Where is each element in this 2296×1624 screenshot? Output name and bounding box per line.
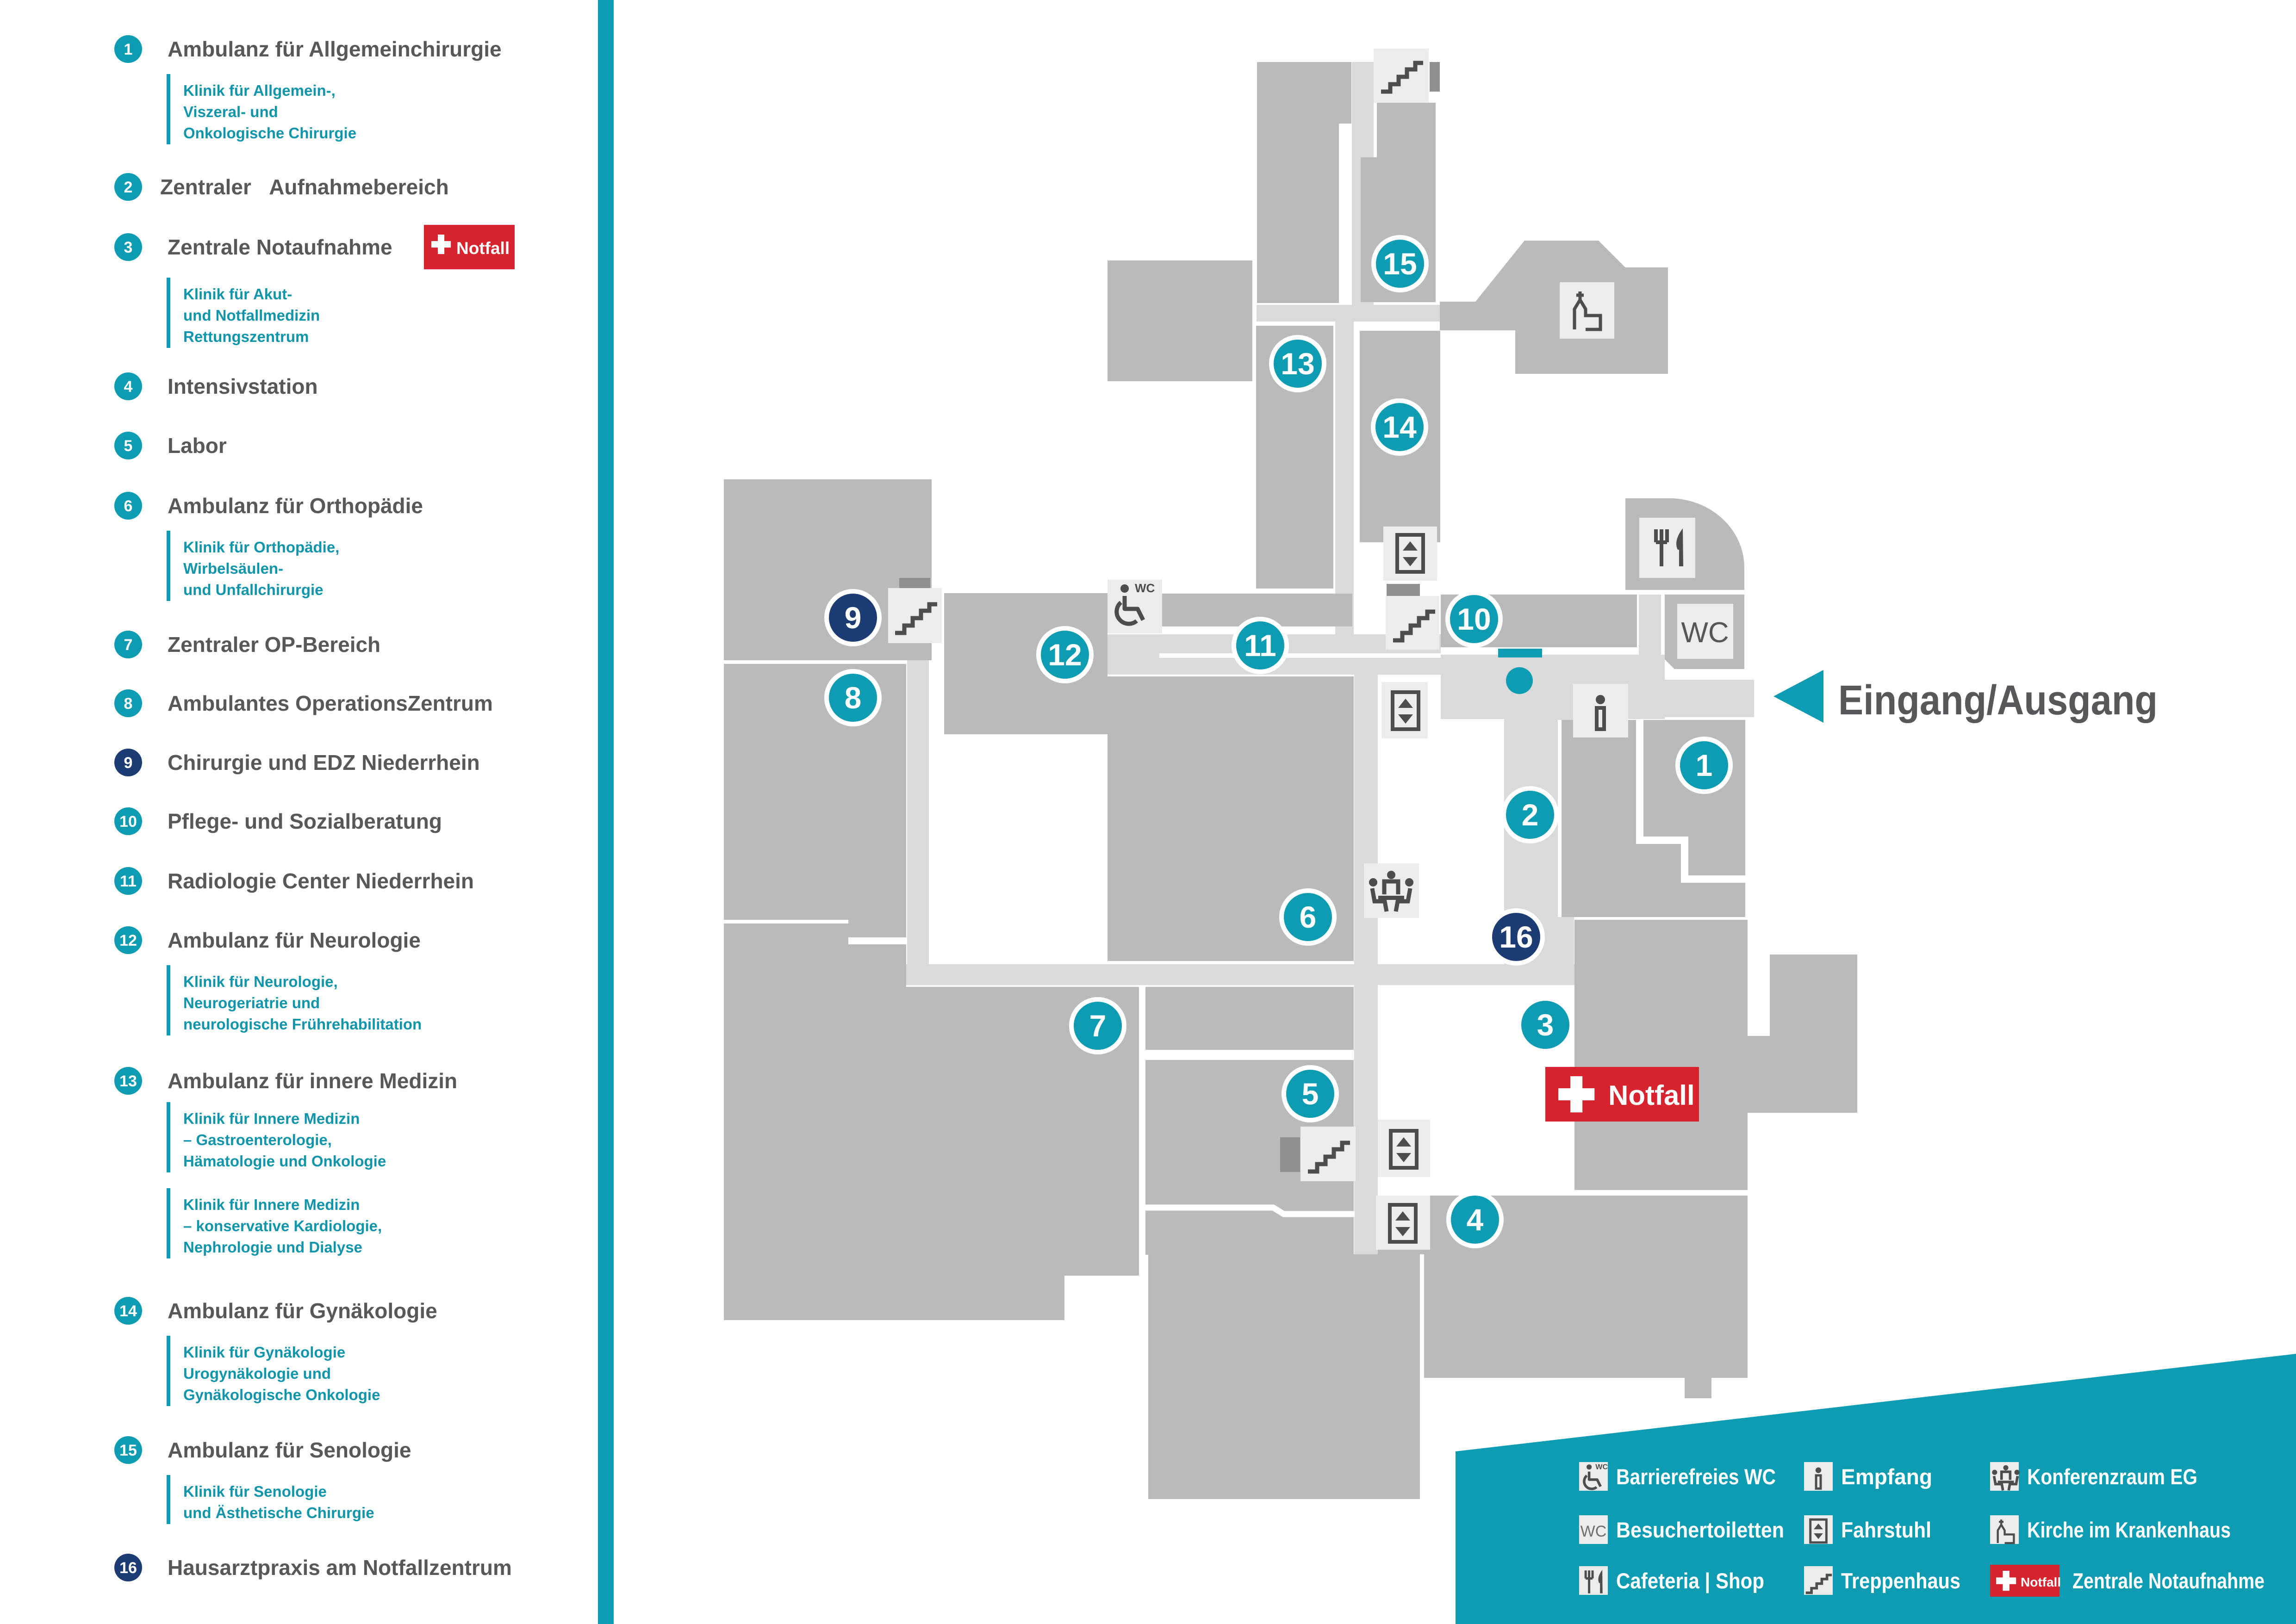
svg-text:und Ästhetische Chirurgie: und Ästhetische Chirurgie <box>183 1504 374 1521</box>
svg-text:Besuchertoiletten: Besuchertoiletten <box>1616 1518 1784 1542</box>
svg-text:4: 4 <box>1467 1203 1484 1237</box>
svg-text:Klinik für Innere Medizin: Klinik für Innere Medizin <box>183 1110 360 1127</box>
svg-text:Urogynäkologie und: Urogynäkologie und <box>183 1365 331 1382</box>
svg-text:Eingang/Ausgang: Eingang/Ausgang <box>1838 677 2158 724</box>
svg-text:9: 9 <box>124 754 133 772</box>
svg-text:11: 11 <box>120 873 137 890</box>
svg-text:Klinik für Senologie: Klinik für Senologie <box>183 1483 327 1500</box>
svg-text:Zentraler OP-Bereich: Zentraler OP-Bereich <box>168 632 380 657</box>
svg-text:und Notfallmedizin: und Notfallmedizin <box>183 307 320 324</box>
svg-text:Zentraler Aufnahmebereich: Zentraler Aufnahmebereich <box>160 175 449 199</box>
svg-text:8: 8 <box>845 681 862 715</box>
svg-text:Intensivstation: Intensivstation <box>168 374 318 398</box>
svg-text:Klinik für Akut-: Klinik für Akut- <box>183 285 292 303</box>
svg-text:11: 11 <box>1244 628 1276 663</box>
svg-text:Neurogeriatrie und: Neurogeriatrie und <box>183 994 320 1011</box>
svg-text:3: 3 <box>124 239 133 256</box>
svg-text:1: 1 <box>124 41 133 58</box>
svg-text:6: 6 <box>124 497 133 515</box>
svg-text:Wirbelsäulen-: Wirbelsäulen- <box>183 560 283 577</box>
svg-text:Klinik für Neurologie,: Klinik für Neurologie, <box>183 973 338 990</box>
svg-text:Ambulanz für Senologie: Ambulanz für Senologie <box>168 1438 411 1462</box>
svg-text:Klinik für Gynäkologie: Klinik für Gynäkologie <box>183 1344 345 1361</box>
svg-text:8: 8 <box>124 695 133 713</box>
svg-text:10: 10 <box>1457 602 1491 636</box>
svg-text:5: 5 <box>124 437 133 455</box>
svg-text:Cafeteria | Shop: Cafeteria | Shop <box>1616 1568 1764 1593</box>
svg-text:Hausarztpraxis am Notfallzentr: Hausarztpraxis am Notfallzentrum <box>168 1556 512 1580</box>
svg-text:Ambulanz für Gynäkologie: Ambulanz für Gynäkologie <box>168 1299 437 1323</box>
svg-text:Labor: Labor <box>168 434 227 458</box>
svg-text:Ambulantes OperationsZentrum: Ambulantes OperationsZentrum <box>168 691 493 715</box>
svg-text:13: 13 <box>119 1072 137 1090</box>
svg-text:14: 14 <box>1382 410 1417 444</box>
svg-text:Fahrstuhl: Fahrstuhl <box>1841 1518 1931 1542</box>
svg-text:13: 13 <box>1281 347 1314 381</box>
svg-text:– Gastroenterologie,: – Gastroenterologie, <box>183 1131 332 1148</box>
svg-text:Empfang: Empfang <box>1841 1464 1932 1489</box>
svg-text:Gynäkologische Onkologie: Gynäkologische Onkologie <box>183 1386 380 1403</box>
svg-text:Nephrologie und Dialyse: Nephrologie und Dialyse <box>183 1239 362 1256</box>
svg-text:4: 4 <box>124 378 133 396</box>
svg-text:10: 10 <box>119 813 137 831</box>
svg-text:7: 7 <box>1089 1009 1107 1043</box>
svg-text:15: 15 <box>1383 247 1417 281</box>
svg-text:– konservative Kardiologie,: – konservative Kardiologie, <box>183 1217 382 1234</box>
svg-text:Viszeral- und: Viszeral- und <box>183 103 278 120</box>
svg-text:Ambulanz für innere Medizin: Ambulanz für innere Medizin <box>168 1069 457 1093</box>
svg-text:2: 2 <box>1522 798 1539 832</box>
svg-text:Hämatologie und Onkologie: Hämatologie und Onkologie <box>183 1153 386 1170</box>
svg-text:Kirche im Krankenhaus: Kirche im Krankenhaus <box>2027 1518 2231 1542</box>
svg-text:Onkologische Chirurgie: Onkologische Chirurgie <box>183 124 356 142</box>
svg-text:6: 6 <box>1300 900 1317 934</box>
svg-text:3: 3 <box>1537 1008 1554 1042</box>
svg-text:5: 5 <box>1302 1077 1319 1111</box>
svg-text:15: 15 <box>119 1442 137 1459</box>
svg-text:WC: WC <box>1580 1523 1607 1540</box>
svg-text:Ambulanz für Orthopädie: Ambulanz für Orthopädie <box>168 494 423 518</box>
svg-text:und Unfallchirurgie: und Unfallchirurgie <box>183 581 324 598</box>
svg-text:7: 7 <box>124 636 133 654</box>
svg-text:2: 2 <box>124 179 133 196</box>
svg-text:9: 9 <box>845 601 862 635</box>
svg-text:12: 12 <box>119 932 137 949</box>
svg-text:Zentrale Notaufnahme: Zentrale Notaufnahme <box>168 235 392 259</box>
svg-text:Klinik für Orthopädie,: Klinik für Orthopädie, <box>183 539 339 556</box>
svg-text:14: 14 <box>119 1302 137 1320</box>
svg-text:Zentrale Notaufnahme: Zentrale Notaufnahme <box>2072 1568 2265 1593</box>
svg-text:Pflege- und Sozialberatung: Pflege- und Sozialberatung <box>168 809 442 833</box>
svg-text:Rettungszentrum: Rettungszentrum <box>183 328 309 345</box>
svg-text:Klinik für Innere Medizin: Klinik für Innere Medizin <box>183 1196 360 1213</box>
svg-text:Barrierefreies WC: Barrierefreies WC <box>1616 1464 1776 1489</box>
svg-text:Ambulanz für Neurologie: Ambulanz für Neurologie <box>168 928 421 952</box>
svg-text:Notfall: Notfall <box>456 239 510 258</box>
svg-text:Notfall: Notfall <box>1608 1080 1695 1111</box>
svg-text:Klinik für Allgemein-,: Klinik für Allgemein-, <box>183 82 336 99</box>
svg-text:Radiologie Center Niederrhein: Radiologie Center Niederrhein <box>168 869 474 893</box>
svg-text:Konferenzraum EG: Konferenzraum EG <box>2027 1464 2197 1489</box>
svg-text:16: 16 <box>119 1559 137 1577</box>
svg-text:1: 1 <box>1696 748 1713 782</box>
svg-text:Chirurgie und EDZ Niederrhein: Chirurgie und EDZ Niederrhein <box>168 750 480 775</box>
svg-text:Ambulanz für Allgemeinchirurgi: Ambulanz für Allgemeinchirurgie <box>168 37 502 61</box>
svg-text:Notfall: Notfall <box>2021 1575 2061 1589</box>
svg-text:neurologische Frührehabilitati: neurologische Frührehabilitation <box>183 1016 422 1033</box>
svg-text:WC: WC <box>1681 617 1729 649</box>
svg-text:16: 16 <box>1499 920 1533 954</box>
svg-text:Treppenhaus: Treppenhaus <box>1841 1568 1960 1593</box>
svg-text:12: 12 <box>1048 638 1082 672</box>
